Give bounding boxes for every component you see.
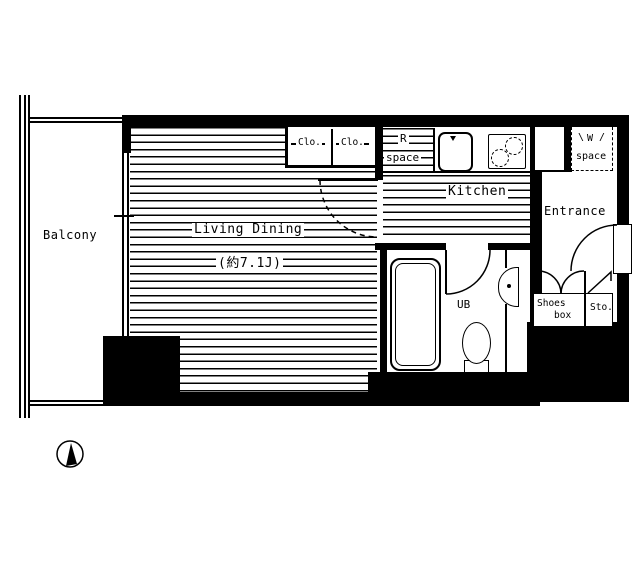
entrance-door-swing-arc [571, 225, 617, 271]
window-line-outer [122, 153, 124, 336]
window-center-tick [114, 215, 134, 217]
bath-wall-contour [505, 304, 507, 372]
shoes-door-swing-arc-right [561, 271, 584, 294]
unit-bath-label: UB [457, 299, 470, 311]
washer-space-tick-left: \ [578, 133, 584, 144]
left-wall-corner [122, 115, 131, 153]
balcony-label: Balcony [43, 229, 97, 242]
bottom-wall-living [103, 392, 380, 406]
kitchen-entrance-wall-upper [530, 127, 535, 172]
closet-divider [331, 129, 333, 167]
closet-2-label: Clo. [341, 138, 364, 148]
living-area-label: (約7.1J) [216, 257, 283, 271]
balcony-rail-top-1 [30, 117, 122, 119]
shoes-box-label-2: box [554, 311, 571, 321]
washbasin [498, 267, 519, 307]
washer-space-label-1: W [587, 134, 593, 145]
closet-left-wall [285, 127, 288, 168]
top-wall [122, 115, 629, 127]
closet-pole-icon [364, 143, 369, 145]
storage-door-line [588, 272, 611, 293]
storage-label: Sto. [590, 303, 613, 313]
closet-pole-icon [322, 143, 325, 145]
closet-pole-icon [336, 143, 339, 145]
kitchen-entrance-wall [530, 172, 542, 372]
living-dining-label: Living Dining [192, 223, 304, 237]
washer-space-label-2: space [576, 152, 606, 163]
entrance-label: Entrance [544, 205, 606, 218]
shoes-storage-divider [584, 271, 586, 326]
bath-left-wall [380, 250, 387, 372]
living-door-leaf [318, 179, 378, 181]
washer-space-tick-right: / [599, 133, 605, 144]
bath-door-swing-arc [446, 250, 490, 294]
balcony-rail-left-1 [19, 95, 21, 418]
closet-pole-icon [291, 143, 296, 145]
bath-door-opening [446, 243, 488, 250]
closet-bottom-wall [285, 165, 383, 168]
bottom-wall-bath [368, 372, 540, 406]
closet-1-label: Clo. [298, 138, 321, 148]
front-door-recess [613, 224, 632, 274]
compass-north-needle-icon [66, 443, 77, 466]
bottom-wall-entrance [527, 322, 629, 402]
bath-wall-contour [505, 250, 507, 268]
bathtub-inner-line [395, 263, 436, 366]
balcony-rail-left-2 [24, 95, 26, 418]
faucet-icon [450, 136, 456, 141]
bath-door-leaf [445, 250, 447, 294]
shoes-box-label-1: Shoes [537, 299, 566, 309]
floor-plan: Balcony Clo. Clo. R space \ W / space [0, 0, 640, 569]
balcony-rail-bottom-1 [30, 400, 103, 402]
balcony-rail-top-2 [30, 121, 122, 123]
balcony-rail-bottom-2 [30, 404, 103, 406]
stove-burner-icon [491, 149, 509, 167]
ps-box-bottom-line [535, 170, 565, 172]
kitchen-label: Kitchen [446, 185, 508, 199]
r-space-label-1: R [398, 133, 409, 145]
balcony-rail-left-3 [28, 95, 30, 418]
living-kitchen-wall [375, 127, 383, 180]
compass-circle [57, 441, 83, 467]
window-line-inner [127, 153, 129, 336]
r-space-label-2: space [384, 152, 421, 164]
stove-burner-icon [505, 137, 523, 155]
toilet-bowl [462, 322, 491, 364]
